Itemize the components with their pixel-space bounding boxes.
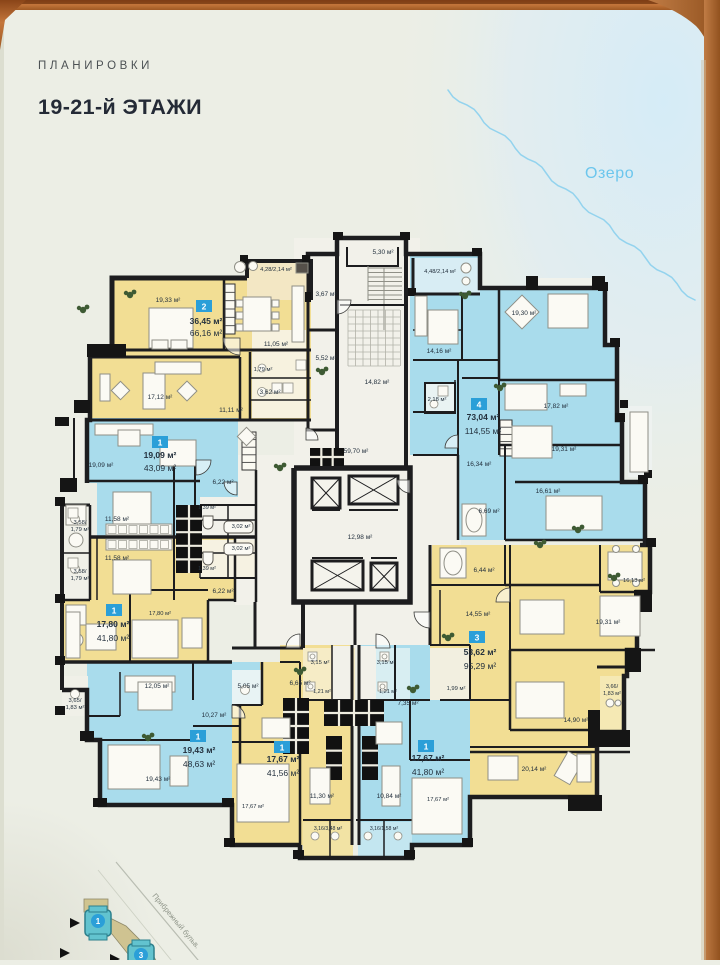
svg-text:3,58/: 3,58/ [74,569,87,575]
svg-text:3,16/1,58 м²: 3,16/1,58 м² [370,826,399,832]
svg-text:6,44 м²: 6,44 м² [473,567,495,574]
svg-text:41,80 м²: 41,80 м² [97,633,129,643]
svg-text:12,05 м²: 12,05 м² [145,683,171,690]
svg-text:43,09 м²: 43,09 м² [144,463,176,473]
svg-text:16,61 м²: 16,61 м² [536,488,562,495]
svg-text:20,14 м²: 20,14 м² [522,766,548,773]
svg-text:3,58/: 3,58/ [74,520,87,526]
svg-text:1: 1 [96,917,101,926]
svg-text:1: 1 [196,732,201,742]
svg-text:5,30 м²: 5,30 м² [372,249,394,256]
svg-text:ПЛАНИРОВКИ: ПЛАНИРОВКИ [38,60,153,72]
svg-text:1,79 м²: 1,79 м² [71,527,90,533]
svg-text:3,62 м²: 3,62 м² [259,389,281,396]
svg-text:1,39 м²: 1,39 м² [198,505,216,511]
svg-text:16,13 м²: 16,13 м² [623,578,645,584]
svg-text:14,90 м²: 14,90 м² [564,717,590,724]
svg-text:1,79 м²: 1,79 м² [71,576,90,582]
svg-text:14,55 м²: 14,55 м² [466,611,492,618]
svg-text:73,04 м²: 73,04 м² [467,412,500,422]
svg-text:11,58 м²: 11,58 м² [105,516,130,523]
svg-text:1: 1 [280,743,285,753]
svg-text:3: 3 [139,951,144,960]
svg-text:3,65/: 3,65/ [69,698,82,704]
svg-text:7,35 м²: 7,35 м² [397,700,419,707]
svg-text:19,31 м²: 19,31 м² [596,619,622,626]
svg-text:19,31 м²: 19,31 м² [552,446,578,453]
svg-text:6,22 м²: 6,22 м² [212,479,234,486]
svg-text:1,83 м²: 1,83 м² [66,705,85,711]
svg-text:19,30 м²: 19,30 м² [512,310,538,317]
svg-text:3: 3 [475,633,480,643]
svg-text:17,67 м²: 17,67 м² [427,797,449,803]
svg-text:17,80 м²: 17,80 м² [97,619,130,629]
svg-text:1: 1 [112,606,117,616]
svg-text:17,12 м²: 17,12 м² [148,394,174,401]
svg-text:6,65 м²: 6,65 м² [289,680,311,687]
svg-text:19,09 м²: 19,09 м² [89,462,115,469]
svg-text:95,29 м²: 95,29 м² [464,661,496,671]
svg-text:66,16 м²: 66,16 м² [190,328,222,338]
svg-text:1,21 м²: 1,21 м² [379,689,397,695]
svg-text:10,84 м²: 10,84 м² [377,793,403,800]
svg-text:11,11 м²: 11,11 м² [219,407,244,414]
svg-text:5,05 м²: 5,05 м² [237,683,259,690]
svg-text:1,21 м²: 1,21 м² [313,689,331,695]
svg-text:3,02 м²: 3,02 м² [232,546,251,552]
svg-text:3,16/3,48 м²: 3,16/3,48 м² [314,826,343,832]
svg-text:19,43 м²: 19,43 м² [183,745,216,755]
svg-text:19,43 м²: 19,43 м² [146,776,172,783]
svg-text:2,18 м²: 2,18 м² [428,397,447,403]
svg-text:14,82 м²: 14,82 м² [365,379,391,386]
svg-text:3,67 м²: 3,67 м² [315,291,337,298]
svg-text:10,27 м²: 10,27 м² [202,712,228,719]
svg-text:Озеро: Озеро [585,165,634,182]
svg-text:1,79 м²: 1,79 м² [254,367,273,373]
svg-text:4: 4 [477,400,482,410]
svg-text:1: 1 [158,438,163,448]
svg-text:17,67 м²: 17,67 м² [242,804,264,810]
svg-text:12,98 м²: 12,98 м² [348,534,374,541]
svg-text:36,45 м²: 36,45 м² [190,316,223,326]
svg-text:3,15 м²: 3,15 м² [311,660,330,666]
svg-text:3,02 м²: 3,02 м² [232,524,251,530]
svg-text:11,05 м²: 11,05 м² [264,341,289,348]
svg-text:11,58 м²: 11,58 м² [105,555,130,562]
svg-text:4,48/2,14 м²: 4,48/2,14 м² [424,269,456,275]
svg-text:4,28/2,14 м²: 4,28/2,14 м² [260,267,292,273]
svg-text:1: 1 [424,742,429,752]
svg-text:2: 2 [202,302,207,312]
svg-text:41,80 м²: 41,80 м² [412,767,444,777]
svg-text:59,70 м²: 59,70 м² [344,448,370,455]
svg-text:19,33 м²: 19,33 м² [156,297,182,304]
svg-text:114,55 м²: 114,55 м² [465,426,502,436]
svg-text:3,66/: 3,66/ [606,684,619,690]
svg-text:3,15 м²: 3,15 м² [377,660,396,666]
svg-text:41,56 м²: 41,56 м² [267,768,299,778]
svg-text:17,80 м²: 17,80 м² [149,611,171,617]
svg-text:1,39 м²: 1,39 м² [198,566,216,572]
svg-text:14,16 м²: 14,16 м² [427,348,453,355]
svg-text:19,09 м²: 19,09 м² [144,450,177,460]
svg-text:48,63 м²: 48,63 м² [183,759,215,769]
svg-text:16,34 м²: 16,34 м² [467,461,493,468]
svg-text:17,67 м²: 17,67 м² [412,753,445,763]
svg-text:17,67 м²: 17,67 м² [267,754,300,764]
svg-text:6,69 м²: 6,69 м² [478,508,500,515]
svg-text:5,52 м²: 5,52 м² [315,355,337,362]
svg-text:1,83 м²: 1,83 м² [603,691,621,697]
svg-text:17,82 м²: 17,82 м² [544,403,570,410]
svg-text:1,99 м²: 1,99 м² [447,686,466,692]
svg-text:6,22 м²: 6,22 м² [212,588,234,595]
svg-text:19-21-й ЭТАЖИ: 19-21-й ЭТАЖИ [38,95,202,119]
svg-text:11,30 м²: 11,30 м² [310,793,335,800]
svg-text:53,62 м²: 53,62 м² [464,647,497,657]
